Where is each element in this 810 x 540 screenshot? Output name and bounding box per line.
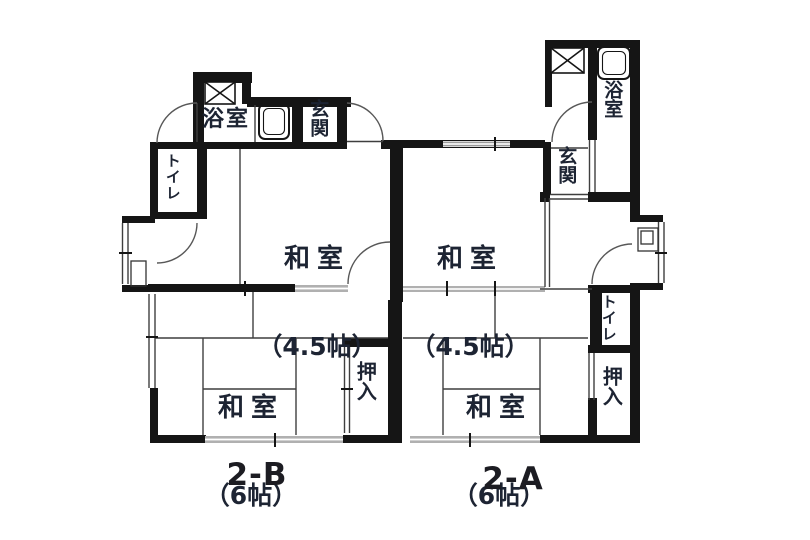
door-arc-bath-2b xyxy=(157,103,197,143)
tatami6-label-2a: 和室 （6帖） xyxy=(422,336,576,540)
toilet-label-2b: トイレ xyxy=(164,153,181,201)
bathtub-icon-2a xyxy=(598,47,630,79)
unit-label-2b: 2-B xyxy=(202,458,312,493)
floorplan-page: 浴室 玄関 トイレ 和室 （4.5帖） 和室 （6帖） 押入 2-B 浴室 玄関… xyxy=(0,0,810,540)
bathroom-label-2b: 浴室 xyxy=(196,108,256,133)
entrance-label-2a: 玄関 xyxy=(555,146,576,184)
window-x-icon-2b xyxy=(205,82,235,104)
tatami6-label-2b: 和室 （6帖） xyxy=(174,336,328,540)
door-arc-entrance-2b xyxy=(347,103,383,141)
door-arc-corridor-2a xyxy=(592,244,632,284)
toilet-label-2a: トイレ xyxy=(600,294,617,342)
tatami6-name-2a: 和室 xyxy=(422,394,576,423)
door-arc-toilet-2b xyxy=(157,223,197,263)
unit-label-2a: 2-A xyxy=(458,462,568,497)
closet-label-2b: 押入 xyxy=(354,361,376,401)
door-arc-entrance-2a xyxy=(552,102,592,142)
tatami45-name-2a: 和室 xyxy=(391,245,549,274)
entrance-label-2b: 玄関 xyxy=(307,99,328,137)
washbasin-icon-2a xyxy=(638,228,658,251)
tatami45-name-2b: 和室 xyxy=(238,245,396,274)
window-x-icon-2a xyxy=(551,48,584,73)
bathroom-label-2a: 浴室 xyxy=(601,80,622,118)
closet-label-2a: 押入 xyxy=(600,366,622,406)
tatami6-name-2b: 和室 xyxy=(174,394,328,423)
washbasin-icon-2b xyxy=(131,261,146,286)
bathtub-icon-2b xyxy=(259,104,289,139)
